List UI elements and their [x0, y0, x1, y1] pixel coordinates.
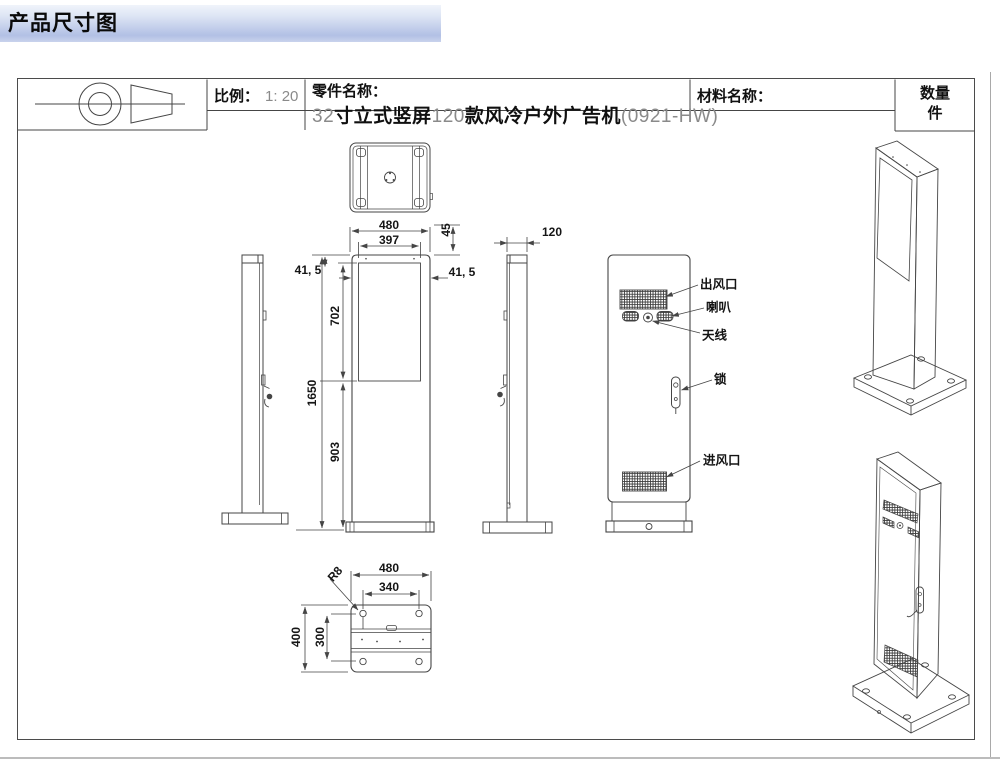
iso-front-view-drawing — [854, 141, 966, 415]
quantity-label: 数量 — [920, 84, 950, 104]
dim-lines-bottom — [301, 571, 431, 672]
part-name-label: 零件名称： — [312, 80, 387, 101]
dim-screen-height: 702 — [328, 306, 342, 326]
dim-depth: 120 — [542, 225, 562, 239]
dim-total-height: 1650 — [305, 380, 319, 407]
dim-side-inset-left: 41, 5 — [295, 263, 322, 277]
part-name-value: 32寸立式竖屏120款风冷户外广告机(0921-HW) — [312, 101, 718, 128]
label-antenna: 天线 — [702, 325, 727, 344]
projection-symbol-icon — [35, 83, 185, 125]
material-label: 材料名称： — [697, 85, 772, 106]
quantity-unit: 件 — [927, 104, 942, 124]
dim-lines-depth — [494, 237, 540, 252]
label-air-inlet: 进风口 — [703, 450, 741, 469]
dim-base-width: 480 — [379, 561, 399, 575]
label-speaker: 喇叭 — [706, 297, 731, 316]
left-side-view-drawing — [222, 255, 288, 524]
scale-value: 1: 20 — [265, 88, 298, 105]
top-view-drawing — [350, 143, 433, 212]
dim-top-width: 480 — [379, 218, 399, 232]
back-view-drawing — [606, 255, 692, 532]
quantity-cell: 数量 件 — [895, 80, 975, 128]
dim-lower-height: 903 — [328, 442, 342, 462]
dim-side-inset-right: 41, 5 — [449, 265, 476, 279]
label-air-outlet: 出风口 — [700, 274, 738, 293]
label-lock: 锁 — [714, 369, 727, 388]
front-view-drawing — [346, 255, 434, 532]
right-side-view-drawing — [483, 255, 552, 533]
iso-back-view-drawing — [853, 452, 969, 733]
dim-bolt-spacing-y: 300 — [313, 627, 327, 647]
dim-bolt-spacing-x: 340 — [379, 580, 399, 594]
dim-top-inset: 45 — [439, 223, 453, 236]
dim-base-depth: 400 — [289, 627, 303, 647]
dim-screen-width: 397 — [379, 233, 399, 247]
scale-cell: 比例：1: 20 — [214, 85, 298, 106]
bottom-view-drawing — [351, 605, 431, 672]
scale-label: 比例： — [214, 88, 259, 105]
drawing-sheet: 产品尺寸图 — [0, 0, 1000, 771]
